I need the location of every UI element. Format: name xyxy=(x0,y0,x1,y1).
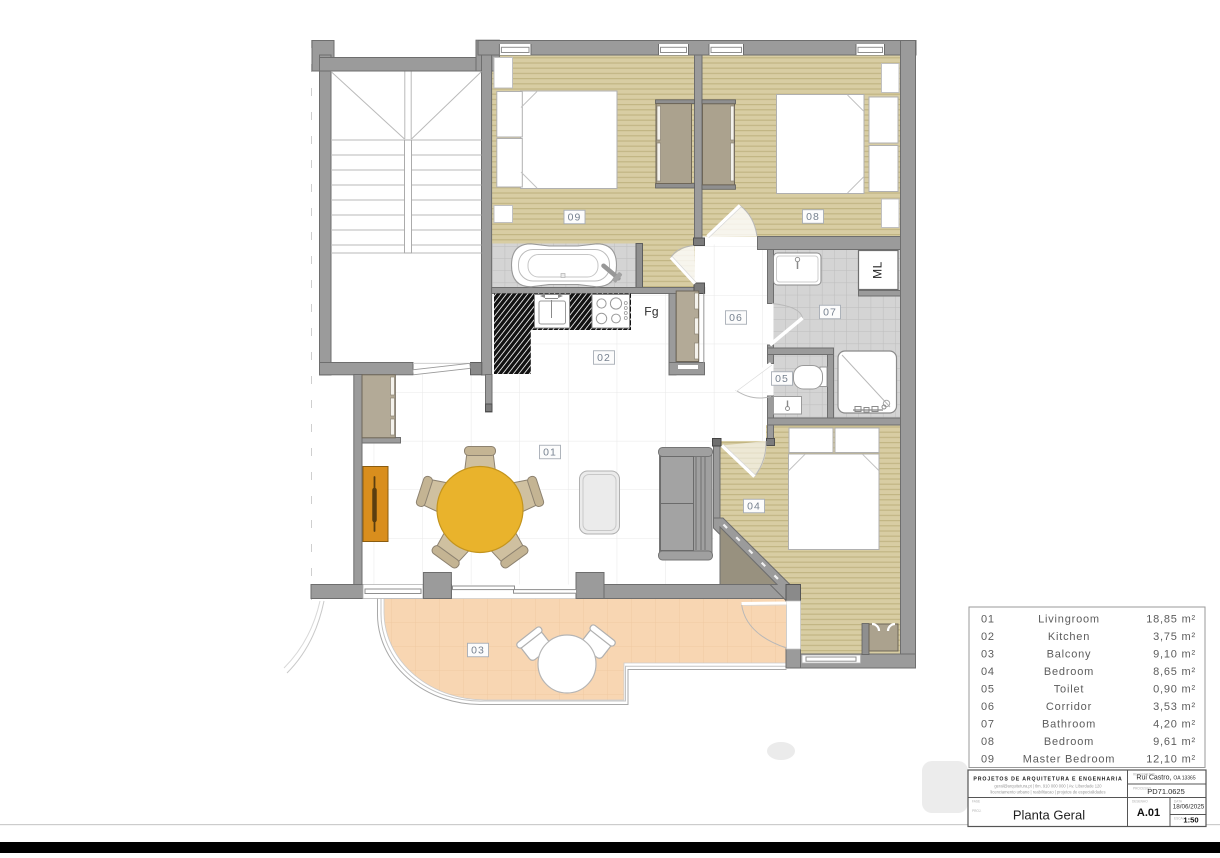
svg-text:08: 08 xyxy=(806,211,820,223)
svg-text:Bedroom: Bedroom xyxy=(1044,666,1094,678)
svg-text:3,75 m²: 3,75 m² xyxy=(1153,631,1196,643)
svg-text:02: 02 xyxy=(597,352,611,364)
svg-text:04: 04 xyxy=(747,501,761,513)
svg-text:12,10 m²: 12,10 m² xyxy=(1146,754,1196,766)
svg-text:07: 07 xyxy=(981,719,995,731)
svg-text:03: 03 xyxy=(981,649,995,661)
svg-text:09: 09 xyxy=(568,212,582,224)
svg-text:06: 06 xyxy=(729,312,743,324)
svg-text:07: 07 xyxy=(823,307,837,319)
svg-text:05: 05 xyxy=(981,684,995,696)
svg-text:Kitchen: Kitchen xyxy=(1048,631,1090,643)
svg-text:FASE: FASE xyxy=(972,800,980,804)
svg-text:Corridor: Corridor xyxy=(1046,701,1092,713)
svg-text:geral@arquitetura.pt | tlm.: geral@arquitetura.pt | tlm. 910 000 000 … xyxy=(994,784,1102,789)
svg-text:05: 05 xyxy=(775,373,789,385)
svg-text:08: 08 xyxy=(981,736,995,748)
svg-text:18/06/2025: 18/06/2025 xyxy=(1173,804,1205,811)
svg-text:ML: ML xyxy=(871,261,885,279)
svg-text:Rui Castro, OA 13365: Rui Castro, OA 13365 xyxy=(1136,775,1195,782)
svg-text:03: 03 xyxy=(471,645,485,657)
svg-text:3,53 m²: 3,53 m² xyxy=(1153,701,1196,713)
svg-text:01: 01 xyxy=(981,614,995,626)
svg-text:02: 02 xyxy=(981,631,995,643)
svg-text:PD71.0625: PD71.0625 xyxy=(1147,787,1185,796)
svg-text:0,90 m²: 0,90 m² xyxy=(1153,684,1196,696)
svg-text:18,85 m²: 18,85 m² xyxy=(1146,614,1196,626)
svg-text:1:50: 1:50 xyxy=(1183,816,1198,825)
svg-text:9,61 m²: 9,61 m² xyxy=(1153,736,1196,748)
svg-text:PROJETOS DE ARQUITETURA E ENGE: PROJETOS DE ARQUITETURA E ENGENHARIA xyxy=(973,777,1122,783)
svg-text:DESENHO: DESENHO xyxy=(1132,800,1148,804)
svg-text:09: 09 xyxy=(981,754,995,766)
svg-text:Bedroom: Bedroom xyxy=(1044,736,1094,748)
svg-text:licenciamento urbano | reabi: licenciamento urbano | reabilitacao | pr… xyxy=(990,790,1105,795)
svg-text:Toilet: Toilet xyxy=(1054,684,1084,696)
svg-text:Balcony: Balcony xyxy=(1047,649,1092,661)
svg-text:Fg: Fg xyxy=(644,305,659,319)
svg-text:01: 01 xyxy=(543,447,557,459)
svg-text:A.01: A.01 xyxy=(1137,807,1160,819)
svg-text:Bathroom: Bathroom xyxy=(1042,719,1096,731)
svg-text:9,10 m²: 9,10 m² xyxy=(1153,649,1196,661)
svg-text:8,65 m²: 8,65 m² xyxy=(1153,666,1196,678)
svg-text:06: 06 xyxy=(981,701,995,713)
svg-text:04: 04 xyxy=(981,666,995,678)
svg-text:Master Bedroom: Master Bedroom xyxy=(1023,754,1116,766)
svg-text:4,20 m²: 4,20 m² xyxy=(1153,719,1196,731)
svg-text:Livingroom: Livingroom xyxy=(1038,614,1100,626)
svg-text:PROJ.: PROJ. xyxy=(972,809,982,813)
svg-text:Planta Geral: Planta Geral xyxy=(1013,808,1085,823)
